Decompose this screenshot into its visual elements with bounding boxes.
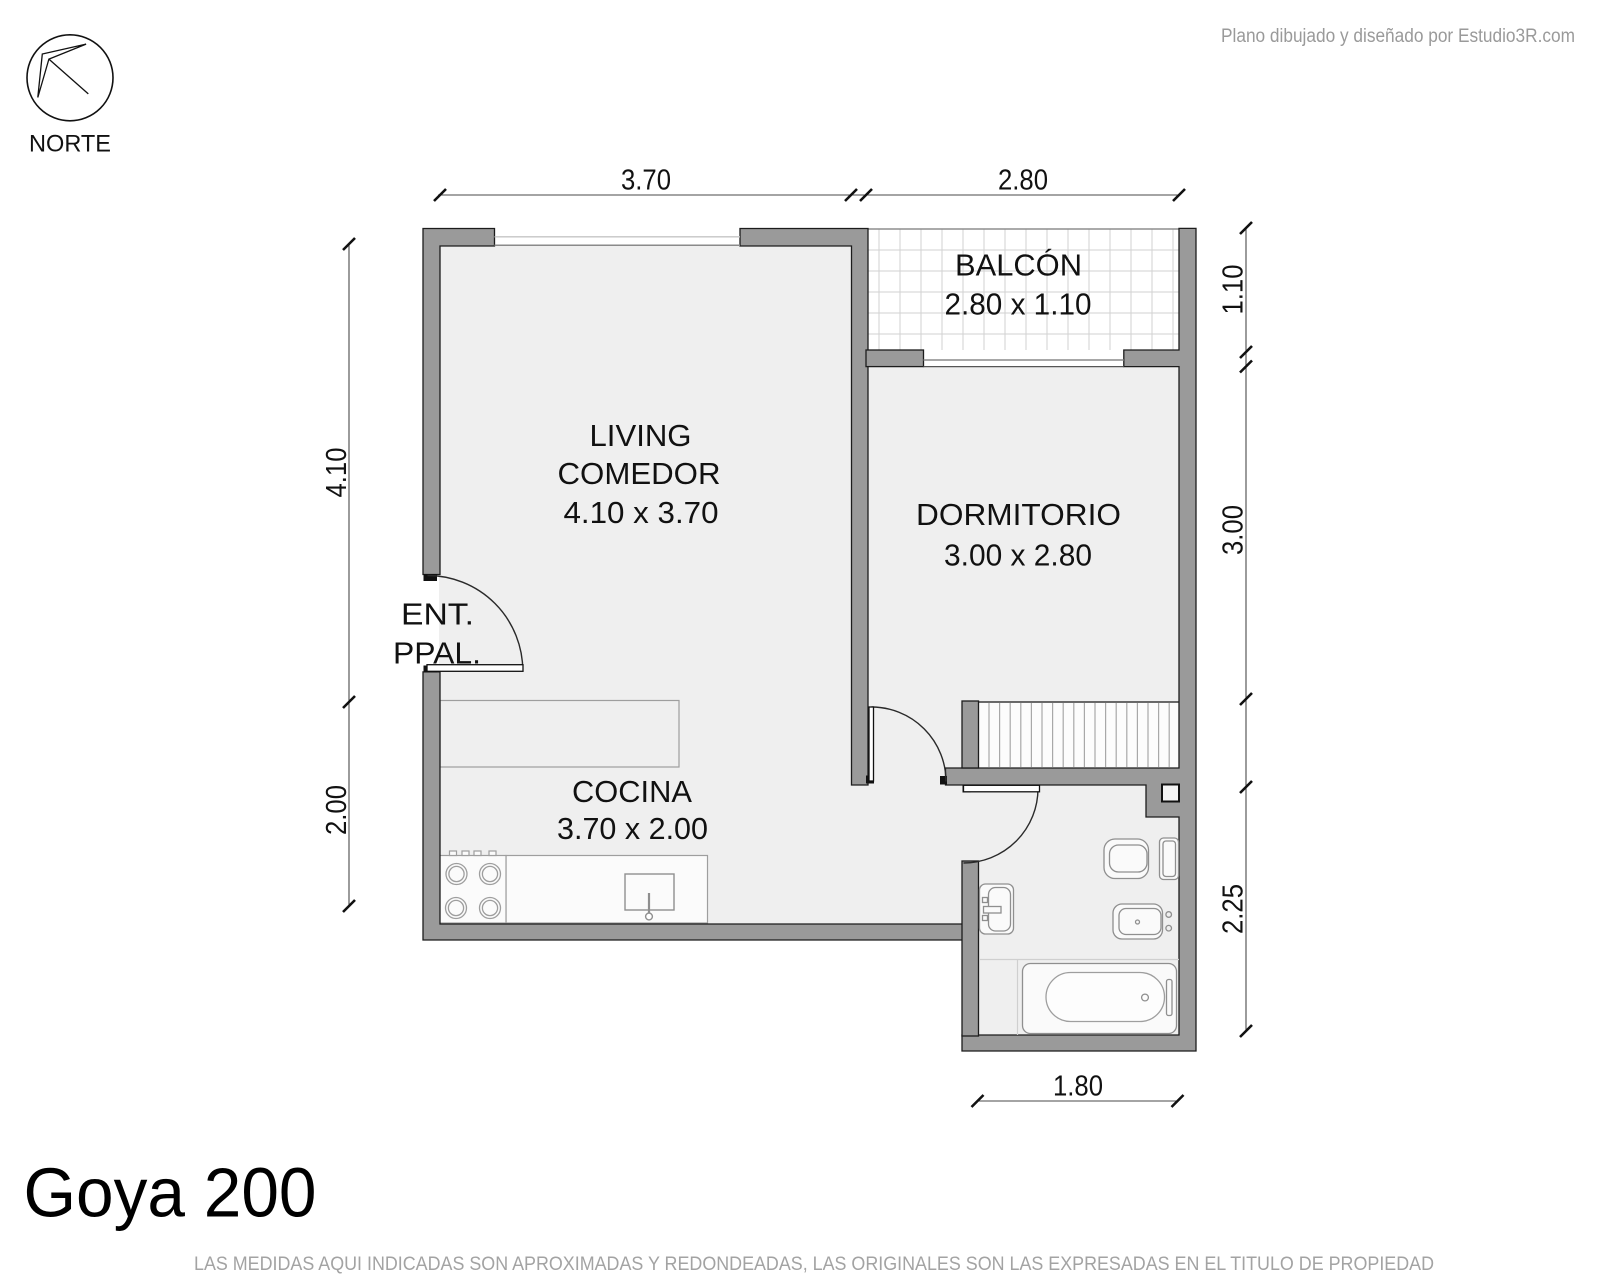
svg-text:1.10: 1.10 bbox=[1218, 265, 1250, 315]
svg-text:Plano dibujado y diseñado por: Plano dibujado y diseñado por Estudio3R.… bbox=[1221, 26, 1575, 47]
svg-text:BALCÓN: BALCÓN bbox=[955, 248, 1082, 283]
svg-text:Goya 200: Goya 200 bbox=[24, 1154, 317, 1232]
svg-text:2.00: 2.00 bbox=[321, 785, 353, 835]
svg-text:NORTE: NORTE bbox=[29, 131, 111, 158]
svg-text:COMEDOR: COMEDOR bbox=[558, 456, 721, 491]
svg-text:3.00: 3.00 bbox=[1218, 505, 1250, 555]
svg-text:4.10 x 3.70: 4.10 x 3.70 bbox=[564, 495, 719, 530]
svg-text:1.80: 1.80 bbox=[1053, 1071, 1103, 1103]
svg-text:4.10: 4.10 bbox=[321, 448, 353, 498]
svg-text:DORMITORIO: DORMITORIO bbox=[916, 497, 1121, 532]
svg-text:3.70 x 2.00: 3.70 x 2.00 bbox=[557, 811, 708, 846]
svg-text:ENT.: ENT. bbox=[401, 597, 474, 632]
svg-text:LAS MEDIDAS AQUI INDICADAS SON: LAS MEDIDAS AQUI INDICADAS SON APROXIMAD… bbox=[194, 1253, 1434, 1275]
svg-text:PPAL.: PPAL. bbox=[393, 636, 481, 671]
svg-text:2.80: 2.80 bbox=[998, 165, 1048, 197]
svg-text:2.25: 2.25 bbox=[1218, 884, 1250, 934]
svg-text:LIVING: LIVING bbox=[590, 418, 692, 453]
svg-text:3.70: 3.70 bbox=[621, 165, 671, 197]
svg-text:3.00 x 2.80: 3.00 x 2.80 bbox=[944, 538, 1092, 573]
svg-text:2.80 x 1.10: 2.80 x 1.10 bbox=[945, 287, 1092, 322]
svg-text:COCINA: COCINA bbox=[572, 774, 692, 809]
